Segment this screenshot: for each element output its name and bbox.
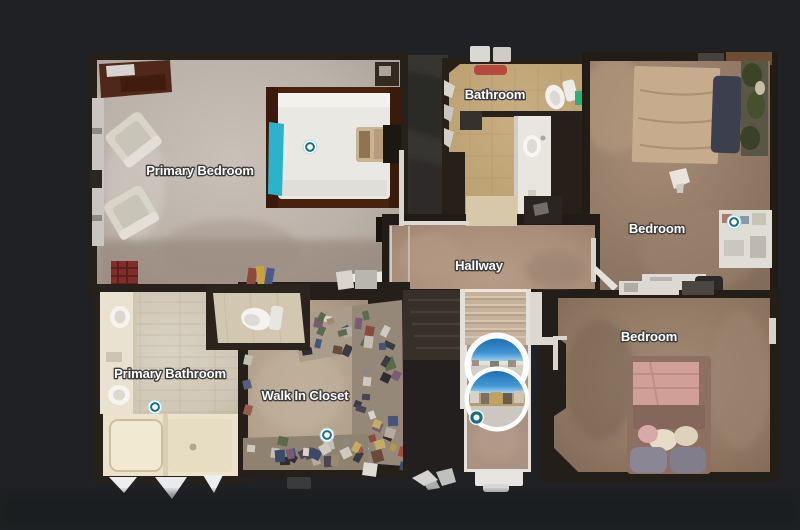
svg-text:Primary Bathroom: Primary Bathroom	[114, 366, 226, 381]
svg-text:Bathroom: Bathroom	[465, 87, 526, 102]
svg-text:Bedroom: Bedroom	[621, 329, 677, 344]
svg-text:Bedroom: Bedroom	[629, 221, 685, 236]
svg-text:Hallway: Hallway	[455, 258, 504, 273]
svg-text:Walk In Closet: Walk In Closet	[262, 388, 350, 403]
svg-text:Primary Bedroom: Primary Bedroom	[146, 163, 254, 178]
